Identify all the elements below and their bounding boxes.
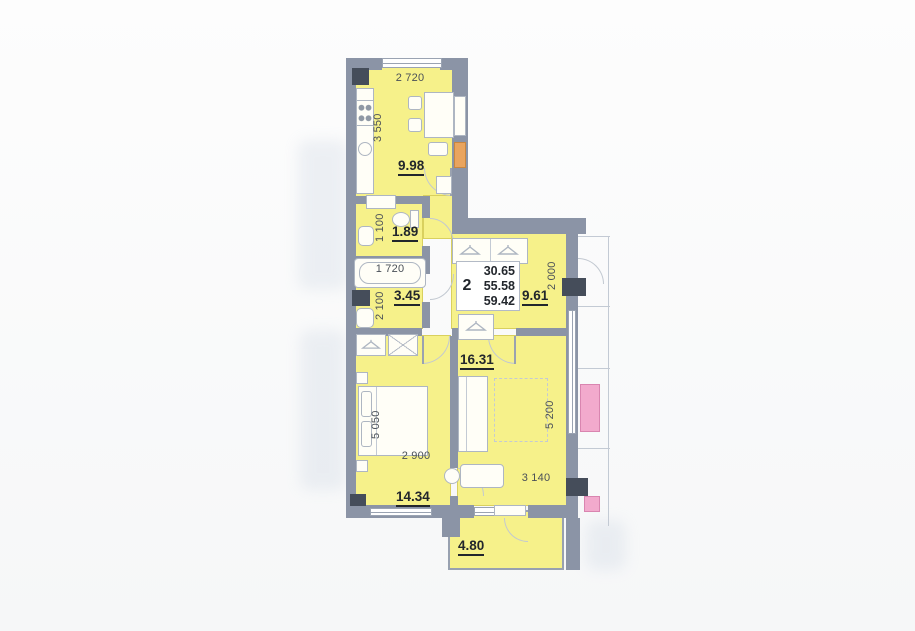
watermark-patch — [298, 140, 348, 290]
sofa — [458, 376, 488, 452]
dim-kitchen-height: 3 550 — [372, 100, 384, 156]
chair — [408, 96, 422, 110]
wall — [442, 505, 460, 537]
riser-shaft — [454, 142, 466, 168]
door-leaf — [422, 336, 424, 364]
wall — [566, 518, 580, 570]
area-hall: 9.61 — [522, 288, 548, 306]
wall — [458, 505, 474, 518]
neighbour-wall-line — [578, 236, 610, 237]
kitchen-sink — [358, 142, 372, 156]
chair — [408, 118, 422, 132]
total-area: 59.42 — [477, 294, 519, 309]
window — [370, 508, 432, 516]
apartment-info-table: 2 30.65 55.58 59.42 — [456, 261, 520, 311]
area-bedroom: 14.34 — [396, 489, 430, 507]
neighbour-wall-line — [578, 368, 610, 369]
door-swing — [430, 274, 454, 300]
dim-bath-width: 1 720 — [366, 263, 414, 275]
crossed-box-icon — [388, 334, 418, 356]
stool — [444, 468, 460, 484]
nightstand — [356, 372, 368, 384]
rug — [494, 378, 548, 442]
dim-living-height: 5 200 — [544, 386, 556, 444]
vent-shaft — [350, 494, 366, 506]
neighbour-wall-line — [608, 236, 609, 526]
dim-bedroom-height: 5 050 — [370, 396, 382, 454]
wall — [422, 196, 430, 218]
wall-panel — [454, 96, 466, 136]
bath-sink — [356, 308, 374, 328]
vent-shaft — [352, 290, 370, 306]
hanger-icon — [464, 319, 488, 333]
balcony-bench — [494, 505, 526, 516]
wall — [452, 218, 586, 234]
area-kitchen: 9.98 — [398, 158, 424, 176]
living-area-total: 30.65 — [477, 264, 519, 279]
wall — [516, 328, 566, 336]
dim-bath-height: 2 100 — [374, 282, 386, 330]
area-living: 16.31 — [460, 352, 494, 370]
dim-bedroom-width: 2 900 — [388, 450, 444, 462]
sofa-back-line — [466, 377, 467, 451]
window — [382, 58, 442, 68]
dim-kitchen-width: 2 720 — [380, 72, 440, 84]
neighbour-wall-line — [578, 448, 610, 449]
rooms-count: 2 — [457, 262, 477, 310]
floor-plan: 2 30.65 55.58 59.42 2 720 3 550 1 100 1 … — [0, 0, 915, 631]
watermark-patch — [586, 520, 626, 570]
nightstand — [356, 460, 368, 472]
window — [568, 310, 576, 434]
area-bath: 3.45 — [394, 288, 420, 306]
wc-sink — [358, 226, 374, 246]
dim-living-width: 3 140 — [508, 472, 564, 484]
neighbour-wall-line — [578, 306, 610, 307]
hanger-icon — [458, 243, 482, 257]
door-leaf — [514, 336, 516, 364]
wall-block — [566, 478, 588, 496]
area-balcony: 4.80 — [458, 538, 484, 556]
chair — [428, 142, 448, 156]
hanger-icon — [360, 338, 382, 351]
wall — [346, 58, 356, 518]
wall — [450, 336, 458, 468]
watermark-patch — [300, 330, 346, 490]
area-wc: 1.89 — [392, 224, 418, 242]
dim-wc-height: 1 100 — [374, 204, 386, 252]
area-without-balcony: 55.58 — [477, 279, 519, 294]
wall — [528, 505, 566, 518]
desk — [460, 464, 504, 488]
door-swing-entrance — [578, 258, 604, 284]
fridge — [436, 176, 452, 194]
hanger-icon — [496, 243, 520, 257]
neighbour-room — [580, 384, 600, 432]
wardrobe-divider — [490, 239, 491, 263]
wall — [422, 302, 430, 328]
dining-table — [424, 92, 454, 138]
neighbour-room — [584, 496, 600, 512]
vent-shaft — [352, 68, 369, 85]
